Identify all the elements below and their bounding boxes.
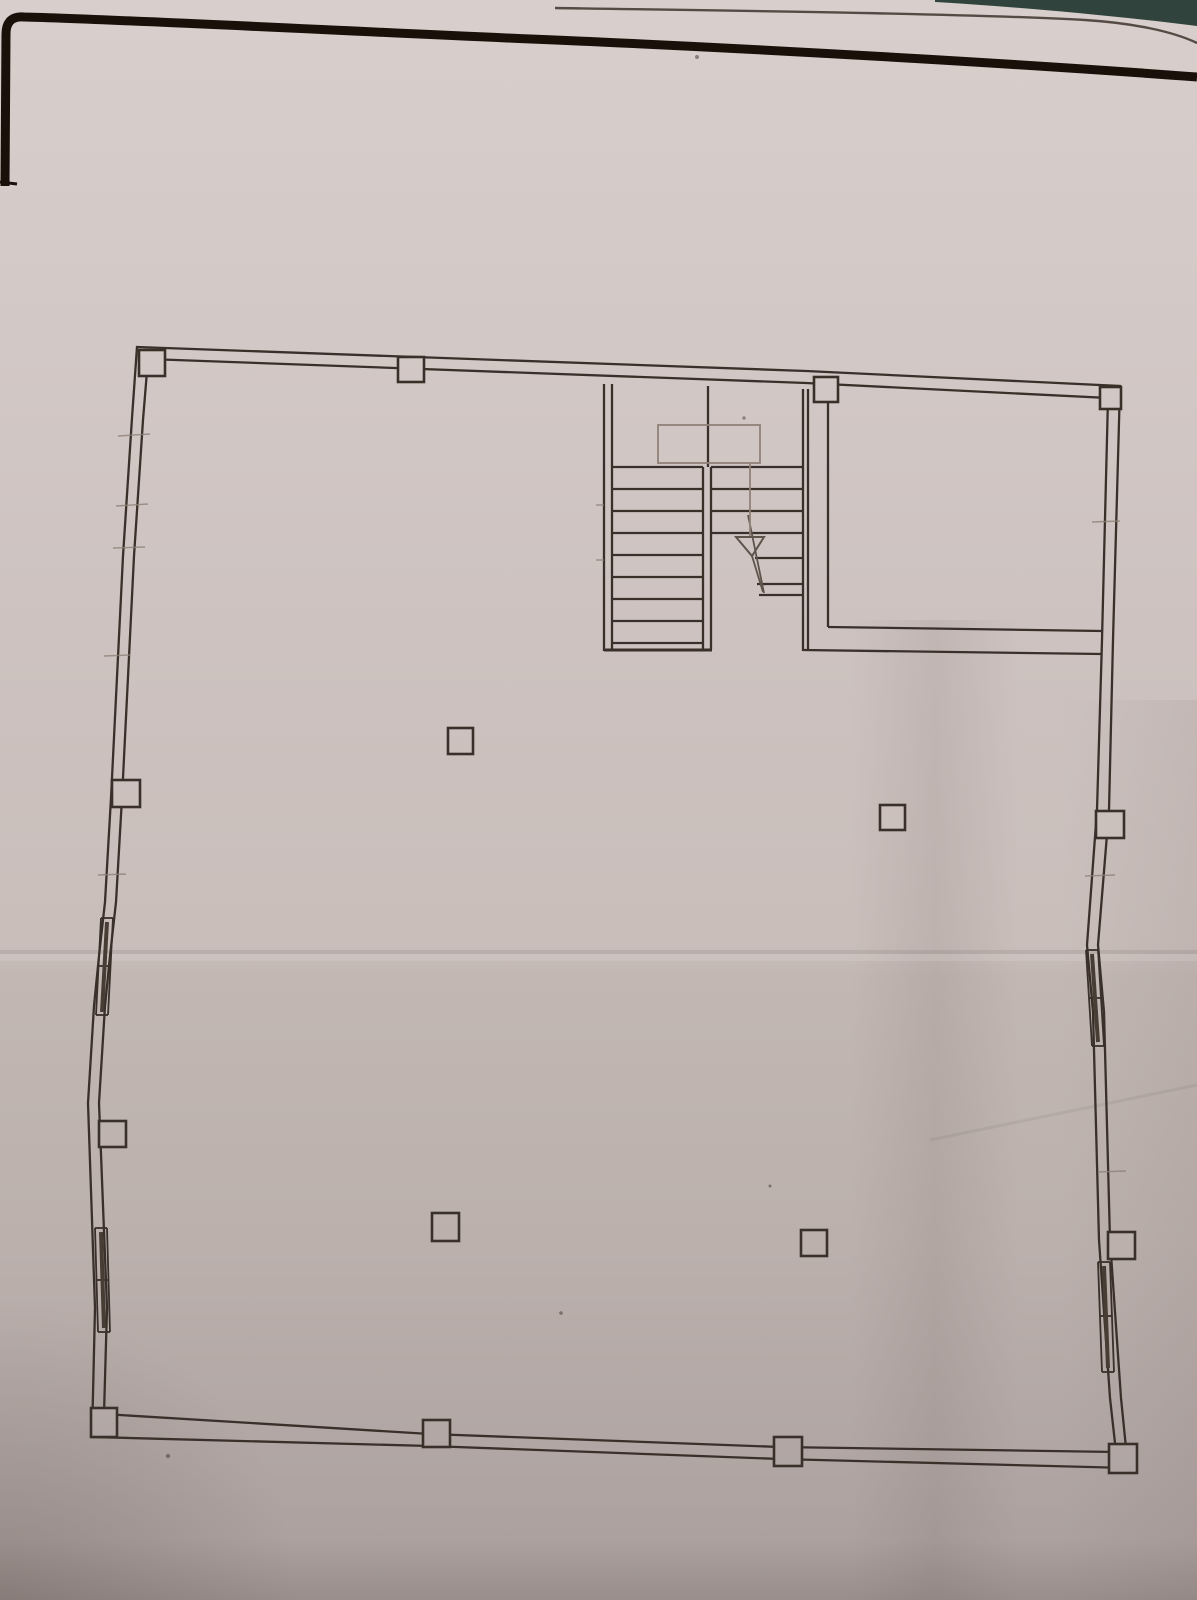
floorplan-photo <box>0 0 1197 1600</box>
column <box>398 357 424 382</box>
bottom-edge-shadow <box>0 1540 1197 1600</box>
freestanding-column <box>448 728 473 754</box>
paper-shading-band <box>850 620 1020 1600</box>
column <box>1100 387 1121 409</box>
column <box>1109 1444 1137 1473</box>
photographed-floorplan-sheet <box>0 0 1197 1600</box>
column <box>814 377 838 402</box>
freestanding-column <box>432 1213 459 1241</box>
fold-crease-highlight <box>0 954 1197 961</box>
column <box>139 350 165 376</box>
column <box>91 1408 117 1437</box>
column <box>1096 811 1124 838</box>
column <box>1108 1232 1135 1259</box>
fold-crease <box>0 950 1197 954</box>
column <box>99 1121 126 1147</box>
column <box>423 1420 450 1447</box>
column <box>774 1437 802 1466</box>
freestanding-column <box>801 1230 827 1256</box>
paper-background <box>0 0 1197 1600</box>
column <box>112 780 140 807</box>
sheet-border-tick <box>0 182 17 184</box>
freestanding-column <box>880 805 905 830</box>
